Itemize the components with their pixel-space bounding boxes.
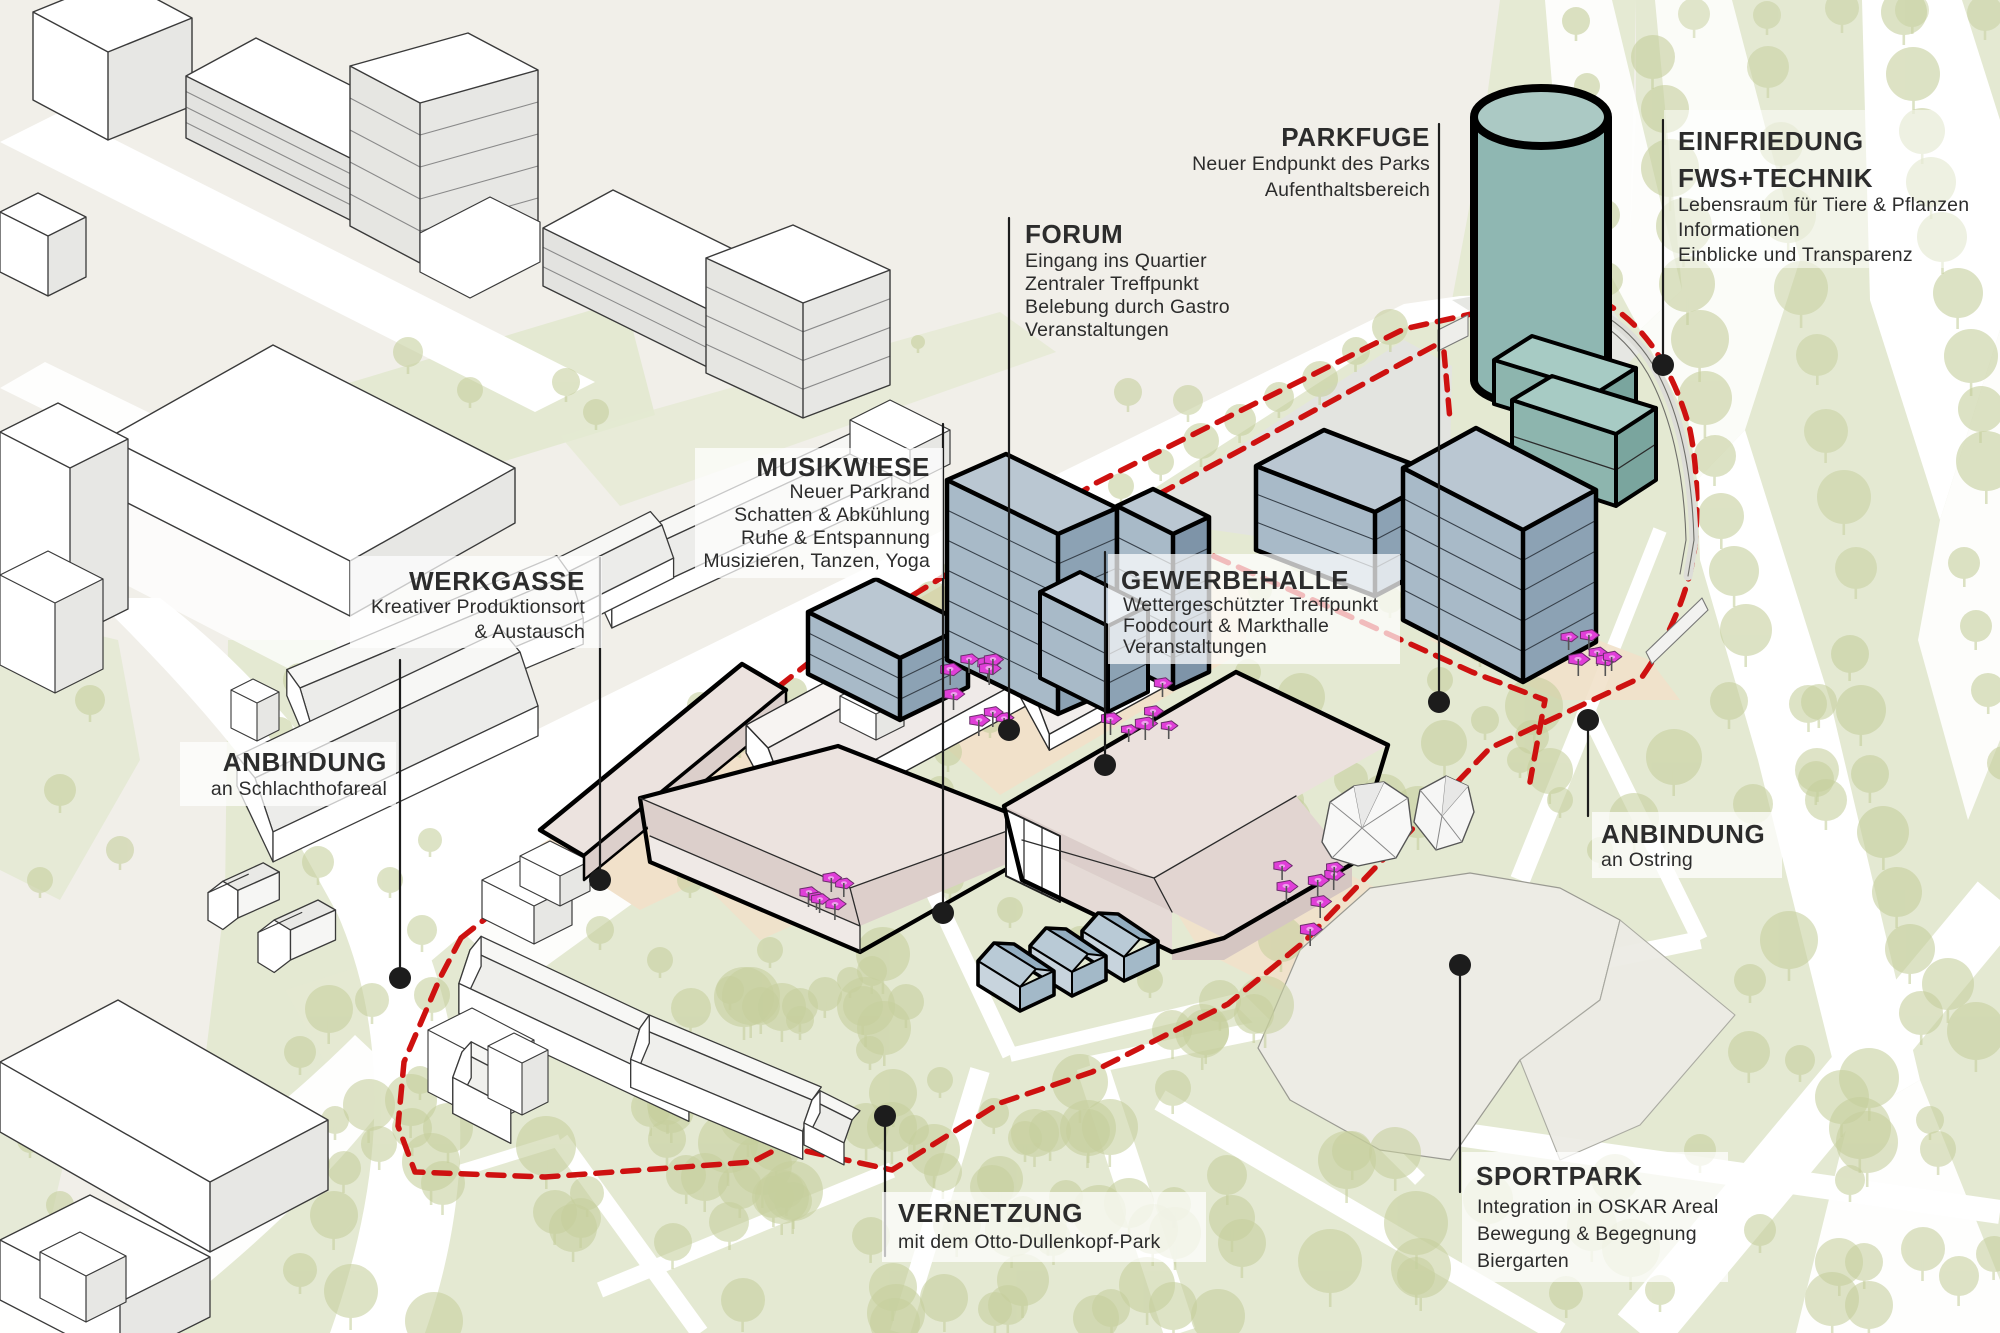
svg-text:Integration in OSKAR Areal: Integration in OSKAR Areal xyxy=(1477,1196,1719,1218)
svg-text:an Ostring: an Ostring xyxy=(1601,849,1693,871)
svg-text:FORUM: FORUM xyxy=(1025,219,1123,249)
svg-text:Wettergeschützter Treffpunkt: Wettergeschützter Treffpunkt xyxy=(1123,594,1379,616)
svg-text:VERNETZUNG: VERNETZUNG xyxy=(898,1198,1083,1228)
svg-text:Belebung durch Gastro: Belebung durch Gastro xyxy=(1025,296,1230,318)
svg-text:Veranstaltungen: Veranstaltungen xyxy=(1025,319,1169,341)
svg-text:Eingang ins Quartier: Eingang ins Quartier xyxy=(1025,250,1207,272)
svg-text:Foodcourt & Markthalle: Foodcourt & Markthalle xyxy=(1123,615,1329,637)
svg-text:ANBINDUNG: ANBINDUNG xyxy=(223,747,387,777)
svg-text:Lebensraum für Tiere & Pflanze: Lebensraum für Tiere & Pflanzen xyxy=(1678,194,1969,216)
svg-text:Neuer Endpunkt des Parks: Neuer Endpunkt des Parks xyxy=(1192,153,1430,175)
svg-text:WERKGASSE: WERKGASSE xyxy=(409,566,585,596)
svg-text:Musizieren, Tanzen, Yoga: Musizieren, Tanzen, Yoga xyxy=(703,550,930,572)
svg-text:Kreativer Produktionsort: Kreativer Produktionsort xyxy=(371,596,585,618)
svg-text:Ruhe & Entspannung: Ruhe & Entspannung xyxy=(741,527,930,549)
svg-text:PARKFUGE: PARKFUGE xyxy=(1281,122,1430,152)
svg-text:EINFRIEDUNG: EINFRIEDUNG xyxy=(1678,126,1864,156)
svg-text:GEWERBEHALLE: GEWERBEHALLE xyxy=(1121,565,1349,595)
svg-text:Zentraler Treffpunkt: Zentraler Treffpunkt xyxy=(1025,273,1199,295)
svg-text:Biergarten: Biergarten xyxy=(1477,1250,1569,1272)
svg-text:mit dem Otto-Dullenkopf-Park: mit dem Otto-Dullenkopf-Park xyxy=(898,1231,1160,1253)
svg-text:FWS+TECHNIK: FWS+TECHNIK xyxy=(1678,163,1873,193)
svg-text:Aufenthaltsbereich: Aufenthaltsbereich xyxy=(1265,179,1430,201)
svg-text:Bewegung & Begegnung: Bewegung & Begegnung xyxy=(1477,1223,1697,1245)
svg-text:Veranstaltungen: Veranstaltungen xyxy=(1123,636,1267,658)
svg-text:MUSIKWIESE: MUSIKWIESE xyxy=(756,452,930,482)
svg-text:Einblicke und Transparenz: Einblicke und Transparenz xyxy=(1678,244,1913,266)
svg-text:Informationen: Informationen xyxy=(1678,219,1800,241)
svg-text:& Austausch: & Austausch xyxy=(474,621,585,643)
svg-text:SPORTPARK: SPORTPARK xyxy=(1476,1161,1643,1191)
svg-text:ANBINDUNG: ANBINDUNG xyxy=(1601,819,1765,849)
svg-text:an Schlachthofareal: an Schlachthofareal xyxy=(211,778,387,800)
svg-text:Neuer Parkrand: Neuer Parkrand xyxy=(790,481,930,503)
svg-text:Schatten & Abkühlung: Schatten & Abkühlung xyxy=(734,504,930,526)
